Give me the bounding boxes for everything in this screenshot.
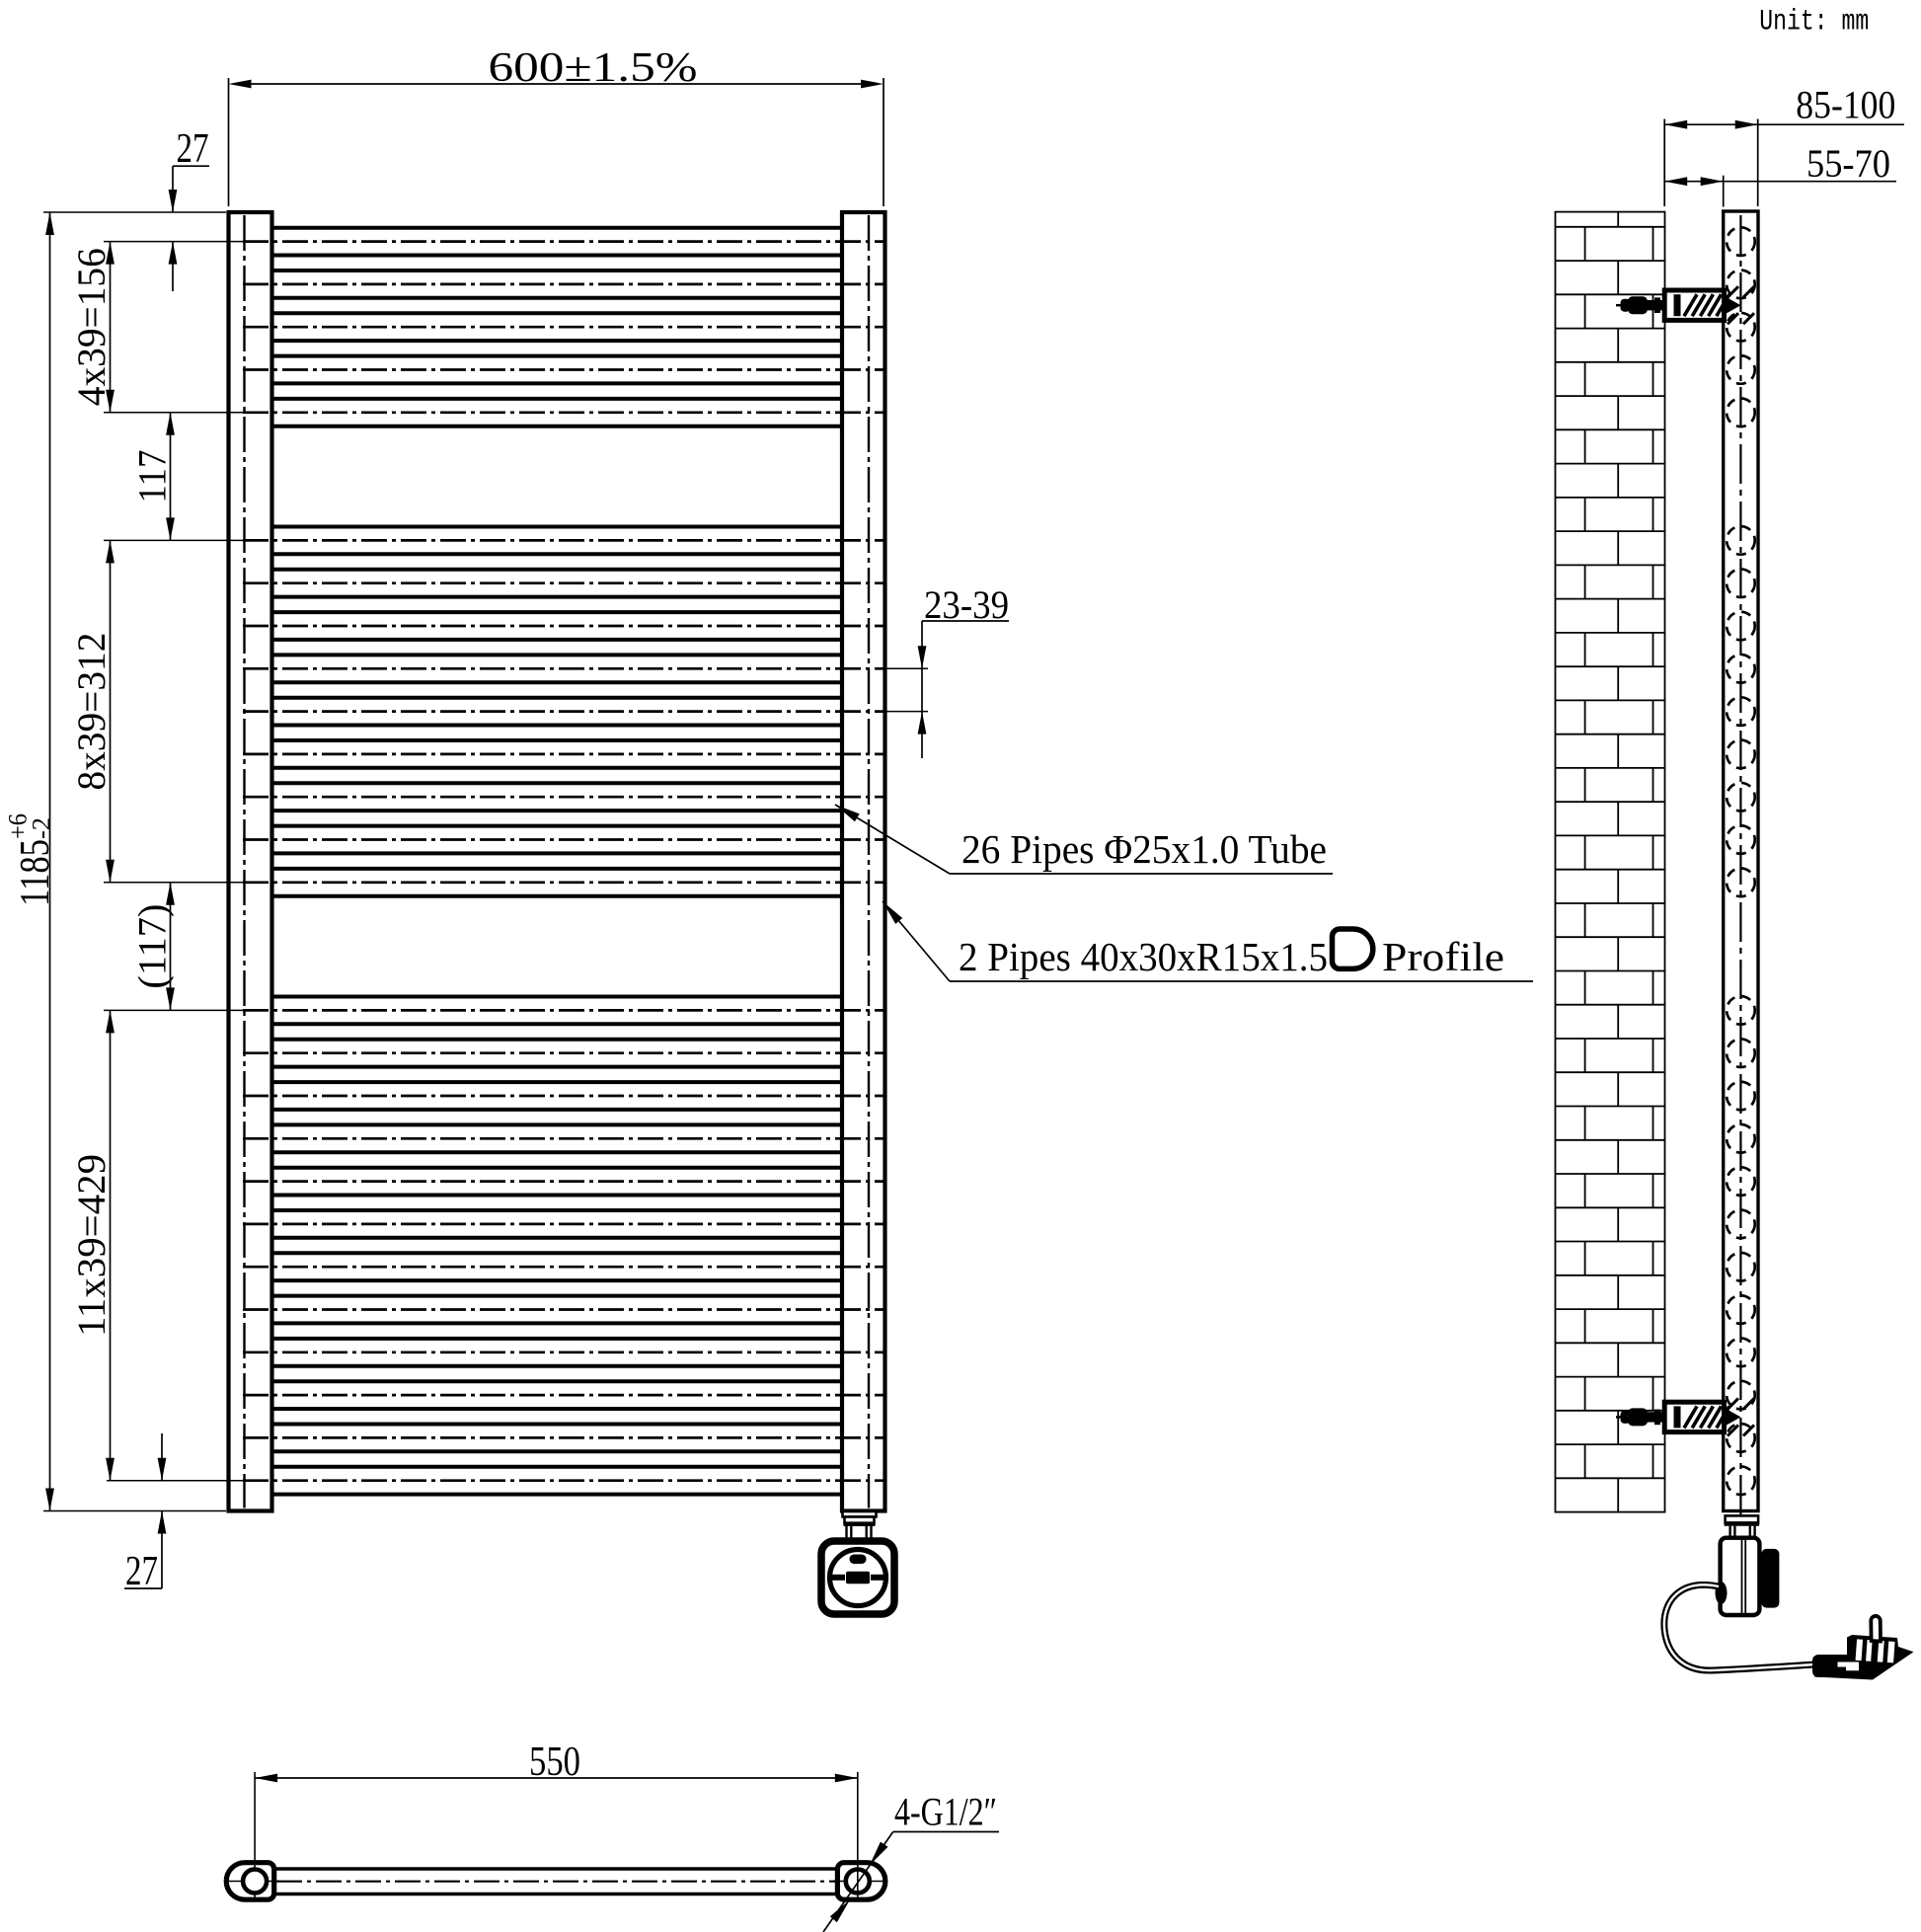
svg-text:8x39=312: 8x39=312 bbox=[69, 633, 114, 791]
svg-text:1185: 1185 bbox=[13, 839, 58, 906]
svg-text:117: 117 bbox=[130, 450, 175, 503]
svg-text:85-100: 85-100 bbox=[1796, 83, 1895, 127]
svg-text:Profile: Profile bbox=[1382, 934, 1504, 979]
svg-text:-2: -2 bbox=[28, 817, 56, 839]
svg-text:55-70: 55-70 bbox=[1806, 141, 1890, 186]
svg-text:11x39=429: 11x39=429 bbox=[69, 1154, 114, 1337]
svg-text:26 Pipes Φ25x1.0 Tube: 26 Pipes Φ25x1.0 Tube bbox=[961, 826, 1327, 872]
svg-text:27: 27 bbox=[177, 126, 209, 172]
svg-text:(117): (117) bbox=[130, 904, 175, 989]
svg-text:4x39=156: 4x39=156 bbox=[69, 248, 114, 406]
svg-text:4-G1/2″: 4-G1/2″ bbox=[894, 1789, 997, 1833]
svg-text:2 Pipes 40x30xR15x1.5: 2 Pipes 40x30xR15x1.5 bbox=[959, 934, 1328, 979]
svg-text:27: 27 bbox=[125, 1549, 158, 1594]
svg-text:Unit: mm: Unit: mm bbox=[1759, 6, 1869, 39]
